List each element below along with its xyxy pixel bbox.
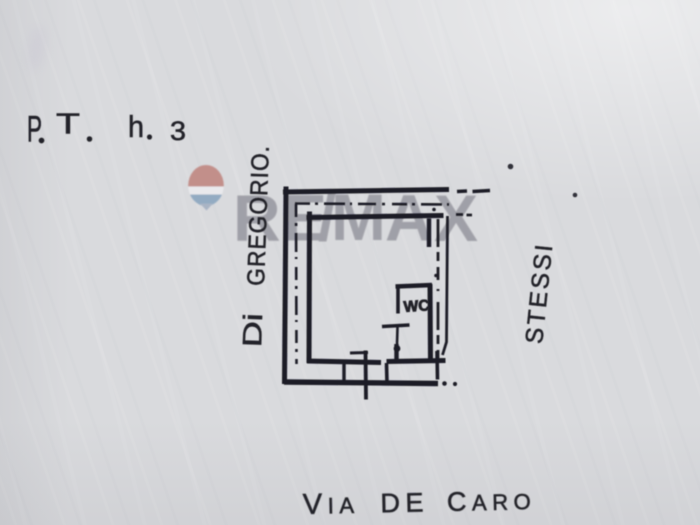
svg-text:GREGORIO.: GREGORIO. — [243, 144, 275, 286]
svg-text:T: T — [56, 109, 80, 141]
svg-text:STESSI: STESSI — [521, 241, 559, 345]
svg-text:h: h — [128, 109, 144, 144]
svg-text:P: P — [27, 109, 42, 150]
svg-text:3: 3 — [170, 116, 186, 146]
svg-text:WC: WC — [403, 297, 430, 316]
svg-text:Di: Di — [237, 313, 268, 348]
svg-text:VIADECARO: VIADECARO — [302, 484, 536, 521]
